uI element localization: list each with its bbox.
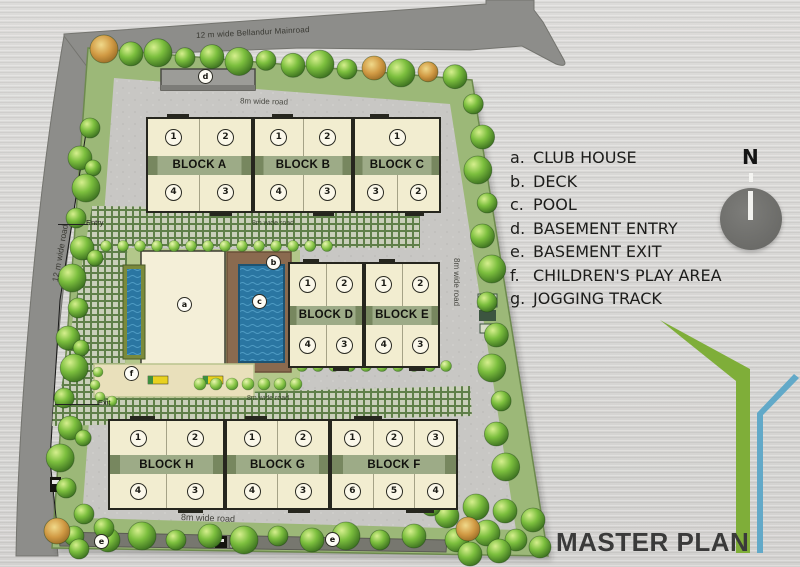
unit-number-badge: 2 bbox=[412, 276, 429, 293]
legend-deck: b. DECK bbox=[510, 170, 722, 194]
road-label-mid-lower: 8m wide road bbox=[247, 395, 289, 402]
unit-number-badge: 3 bbox=[295, 483, 312, 500]
legend-label: POOL bbox=[533, 195, 577, 214]
legend-label: BASEMENT EXIT bbox=[533, 242, 662, 261]
unit-number-badge: 2 bbox=[217, 129, 234, 146]
legend-club-house: a. CLUB HOUSE bbox=[510, 146, 722, 170]
block-label: BLOCK F bbox=[332, 455, 456, 474]
unit-cell: 1 bbox=[227, 421, 277, 455]
legend-childrens-play-area: f. CHILDREN'S PLAY AREA bbox=[510, 264, 722, 288]
legend-key: f. bbox=[510, 266, 528, 285]
unit-number-badge: 2 bbox=[410, 184, 427, 201]
legend-label: CLUB HOUSE bbox=[533, 148, 637, 167]
unit-cell: 1 bbox=[148, 119, 199, 156]
unit-cell: 3 bbox=[303, 175, 352, 212]
pool-shape bbox=[239, 265, 284, 362]
block-lower-units: 654 bbox=[332, 474, 456, 508]
block-upper-units: 12 bbox=[148, 119, 251, 156]
block-row-2: 12 BLOCK D 43 12 BLOCK E 43 bbox=[288, 262, 440, 368]
block: 12 BLOCK B 43 bbox=[253, 117, 353, 213]
block-row-1: 12 BLOCK A 43 12 BLOCK B 43 1 bbox=[146, 117, 441, 213]
marker-deck: b bbox=[266, 255, 281, 270]
legend-basement-entry: d. BASEMENT ENTRY bbox=[510, 217, 722, 241]
legend-key: c. bbox=[510, 195, 528, 214]
unit-cell: 3 bbox=[166, 474, 223, 508]
block-upper-units: 123 bbox=[332, 421, 456, 455]
unit-number-badge: 4 bbox=[244, 483, 261, 500]
master-plan-canvas: 12 BLOCK A 43 12 BLOCK B 43 1 bbox=[0, 0, 800, 567]
unit-number-badge: 3 bbox=[427, 430, 444, 447]
unit-cell: 3 bbox=[199, 175, 251, 212]
unit-cell: 4 bbox=[148, 175, 199, 212]
unit-number-badge: 4 bbox=[375, 337, 392, 354]
unit-number-badge: 3 bbox=[217, 184, 234, 201]
unit-number-badge: 4 bbox=[130, 483, 147, 500]
compass-needle bbox=[748, 191, 753, 220]
road-label-top-inner: 8m wide road bbox=[240, 96, 288, 106]
unit-number-badge: 4 bbox=[165, 184, 182, 201]
unit-cell: 2 bbox=[326, 264, 363, 306]
legend-label: DECK bbox=[533, 172, 577, 191]
unit-number-badge: 4 bbox=[427, 483, 444, 500]
block: 12 BLOCK D 43 bbox=[288, 262, 364, 368]
unit-cell: 4 bbox=[290, 325, 326, 367]
block: 12 BLOCK G 43 bbox=[225, 419, 330, 510]
block-label: BLOCK C bbox=[355, 156, 439, 175]
block-upper-units: 12 bbox=[290, 264, 362, 306]
blue-ribbon bbox=[757, 374, 799, 553]
block-lower-units: 43 bbox=[227, 474, 328, 508]
block-upper-units: 12 bbox=[255, 119, 351, 156]
block-lower-units: 43 bbox=[148, 175, 251, 212]
entry-label: Entry bbox=[86, 218, 104, 227]
unit-number-badge: 3 bbox=[367, 184, 384, 201]
unit-number-badge: 2 bbox=[319, 129, 336, 146]
unit-number-badge: 1 bbox=[165, 129, 182, 146]
unit-number-badge: 1 bbox=[375, 276, 392, 293]
page-title: MASTER PLAN bbox=[556, 527, 749, 558]
marker-basement-exit-left: e bbox=[94, 534, 109, 549]
unit-cell: 3 bbox=[277, 474, 328, 508]
legend-label: BASEMENT ENTRY bbox=[533, 219, 678, 238]
block-lower-units: 43 bbox=[366, 325, 438, 367]
block-label: BLOCK G bbox=[227, 455, 328, 474]
unit-number-badge: 1 bbox=[244, 430, 261, 447]
unit-cell: 2 bbox=[199, 119, 251, 156]
unit-number-badge: 4 bbox=[299, 337, 316, 354]
block-lower-units: 43 bbox=[290, 325, 362, 367]
unit-cell: 6 bbox=[332, 474, 373, 508]
legend-key: g. bbox=[510, 289, 528, 308]
block: 12 BLOCK E 43 bbox=[364, 262, 440, 368]
unit-cell: 3 bbox=[326, 325, 363, 367]
unit-cell: 4 bbox=[414, 474, 456, 508]
road-label-bottom: 8m wide road bbox=[181, 512, 235, 524]
marker-club-house: a bbox=[177, 297, 192, 312]
club-house-shape bbox=[141, 251, 225, 375]
block-upper-units: 1 bbox=[355, 119, 439, 156]
unit-cell: 4 bbox=[227, 474, 277, 508]
block-upper-units: 12 bbox=[366, 264, 438, 306]
unit-cell: 1 bbox=[332, 421, 373, 455]
unit-number-badge: 3 bbox=[412, 337, 429, 354]
unit-number-badge: 3 bbox=[187, 483, 204, 500]
marker-basement-exit-right: e bbox=[325, 532, 340, 547]
block-lower-units: 32 bbox=[355, 175, 439, 212]
block-label: BLOCK B bbox=[255, 156, 351, 175]
block-label: BLOCK D bbox=[290, 306, 362, 325]
legend: a. CLUB HOUSE b. DECK c. POOL d. BASEMEN… bbox=[510, 146, 722, 311]
block-label: BLOCK H bbox=[110, 455, 223, 474]
legend-label: JOGGING TRACK bbox=[533, 289, 662, 308]
unit-cell: 1 bbox=[255, 119, 303, 156]
unit-number-badge: 2 bbox=[187, 430, 204, 447]
legend-key: e. bbox=[510, 242, 528, 261]
unit-number-badge: 2 bbox=[295, 430, 312, 447]
block: 12 BLOCK H 43 bbox=[108, 419, 225, 510]
unit-cell: 3 bbox=[402, 325, 439, 367]
compass-tick bbox=[749, 173, 753, 182]
green-ribbon bbox=[660, 320, 750, 553]
unit-cell: 1 bbox=[366, 264, 402, 306]
unit-number-badge: 2 bbox=[336, 276, 353, 293]
unit-number-badge: 6 bbox=[344, 483, 361, 500]
unit-cell: 2 bbox=[402, 264, 439, 306]
unit-cell: 3 bbox=[355, 175, 397, 212]
legend-jogging-track: g. JOGGING TRACK bbox=[510, 287, 722, 311]
road-label-mid-upper: 8m wide road bbox=[252, 220, 294, 227]
unit-cell: 5 bbox=[373, 474, 415, 508]
unit-cell: 1 bbox=[110, 421, 166, 455]
road-label-right: 8m wide road bbox=[452, 258, 461, 306]
block-label: BLOCK E bbox=[366, 306, 438, 325]
unit-number-badge: 1 bbox=[389, 129, 406, 146]
block: 12 BLOCK A 43 bbox=[146, 117, 253, 213]
unit-number-badge: 4 bbox=[270, 184, 287, 201]
block-upper-units: 12 bbox=[110, 421, 223, 455]
legend-pool: c. POOL bbox=[510, 193, 722, 217]
block-upper-units: 12 bbox=[227, 421, 328, 455]
unit-cell: 2 bbox=[303, 119, 352, 156]
unit-cell: 2 bbox=[277, 421, 328, 455]
unit-number-badge: 3 bbox=[319, 184, 336, 201]
unit-cell: 4 bbox=[255, 175, 303, 212]
unit-number-badge: 1 bbox=[130, 430, 147, 447]
unit-number-badge: 1 bbox=[299, 276, 316, 293]
unit-number-badge: 5 bbox=[386, 483, 403, 500]
unit-number-badge: 3 bbox=[336, 337, 353, 354]
marker-basement-entry: d bbox=[198, 69, 213, 84]
unit-cell: 1 bbox=[355, 119, 439, 156]
unit-cell: 3 bbox=[414, 421, 456, 455]
legend-key: d. bbox=[510, 219, 528, 238]
marker-pool: c bbox=[252, 294, 267, 309]
lap-pool-shape bbox=[123, 265, 145, 359]
unit-cell: 2 bbox=[397, 175, 440, 212]
unit-cell: 4 bbox=[366, 325, 402, 367]
unit-number-badge: 1 bbox=[344, 430, 361, 447]
block: 1 BLOCK C 32 bbox=[353, 117, 441, 213]
block-row-3: 12 BLOCK H 43 12 BLOCK G 43 123 bbox=[108, 419, 458, 510]
block-lower-units: 43 bbox=[110, 474, 223, 508]
unit-number-badge: 2 bbox=[386, 430, 403, 447]
unit-cell: 1 bbox=[290, 264, 326, 306]
unit-cell: 2 bbox=[166, 421, 223, 455]
compass-north-label: N bbox=[742, 145, 759, 169]
block-label: BLOCK A bbox=[148, 156, 251, 175]
unit-cell: 2 bbox=[373, 421, 415, 455]
block: 123 BLOCK F 654 bbox=[330, 419, 458, 510]
legend-basement-exit: e. BASEMENT EXIT bbox=[510, 240, 722, 264]
marker-childrens-play-area: f bbox=[124, 366, 139, 381]
entry-leader-line bbox=[58, 224, 88, 225]
exit-leader-line bbox=[55, 404, 99, 405]
exit-label: Exit bbox=[98, 398, 111, 407]
legend-key: b. bbox=[510, 172, 528, 191]
legend-label: CHILDREN'S PLAY AREA bbox=[533, 266, 722, 285]
legend-key: a. bbox=[510, 148, 528, 167]
block-lower-units: 43 bbox=[255, 175, 351, 212]
unit-number-badge: 1 bbox=[270, 129, 287, 146]
unit-cell: 4 bbox=[110, 474, 166, 508]
